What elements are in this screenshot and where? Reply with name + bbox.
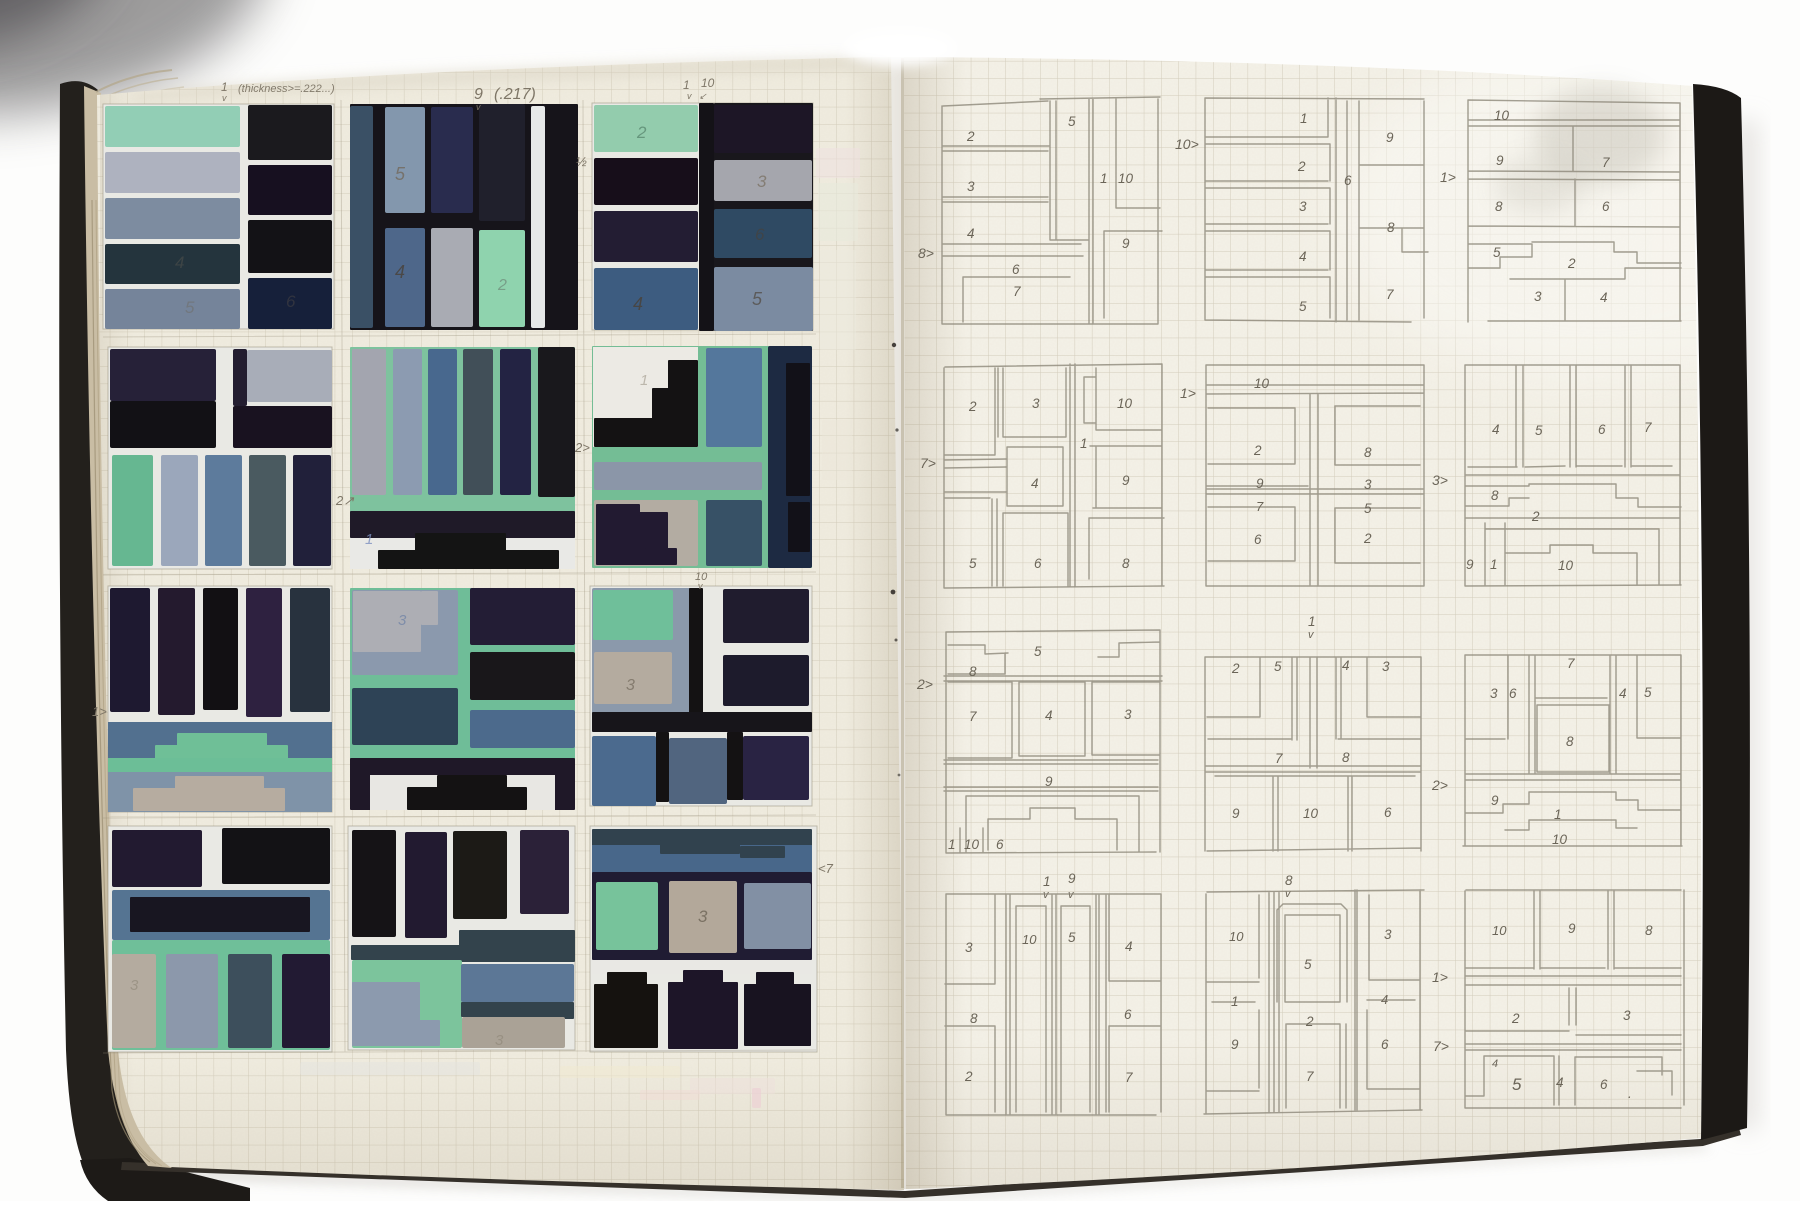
svg-text:8: 8: [1495, 199, 1503, 214]
svg-text:1: 1: [1490, 557, 1498, 572]
svg-text:3: 3: [626, 677, 635, 694]
svg-text:8>: 8>: [918, 245, 934, 261]
svg-text:2>: 2>: [574, 440, 590, 455]
svg-text:3: 3: [1534, 289, 1542, 304]
svg-text:10: 10: [1117, 396, 1133, 411]
svg-text:9: 9: [1122, 236, 1130, 251]
svg-text:7: 7: [1256, 499, 1264, 514]
svg-text:7: 7: [1386, 287, 1394, 302]
svg-text:9: 9: [1068, 871, 1076, 886]
svg-text:10: 10: [1552, 832, 1568, 847]
svg-text:1: 1: [948, 837, 956, 852]
svg-text:7: 7: [1125, 1070, 1133, 1085]
svg-text:3: 3: [398, 612, 407, 629]
svg-text:1: 1: [1300, 111, 1308, 126]
svg-text:v: v: [476, 102, 481, 112]
svg-text:2: 2: [497, 277, 507, 294]
svg-text:4: 4: [1299, 249, 1307, 264]
svg-text:2: 2: [1231, 661, 1240, 676]
svg-text:7: 7: [1306, 1069, 1314, 1084]
svg-text:6: 6: [1598, 422, 1606, 437]
svg-text:5: 5: [1493, 245, 1501, 260]
svg-text:8: 8: [1566, 734, 1574, 749]
svg-text:9: 9: [1045, 774, 1053, 789]
svg-text:10: 10: [701, 76, 715, 90]
svg-text:5: 5: [1364, 501, 1372, 516]
svg-text:6: 6: [1600, 1077, 1608, 1092]
svg-text:2: 2: [966, 129, 975, 144]
svg-text:(thickness>=.222...): (thickness>=.222...): [238, 83, 335, 95]
svg-text:10: 10: [1229, 929, 1244, 944]
svg-text:9: 9: [1231, 1037, 1239, 1052]
svg-text:↙: ↙: [699, 91, 707, 101]
svg-text:6: 6: [1254, 532, 1262, 547]
svg-text:4: 4: [1600, 290, 1608, 305]
svg-text:1: 1: [683, 78, 690, 92]
svg-text:3: 3: [967, 179, 975, 194]
svg-text:5: 5: [1299, 299, 1307, 314]
svg-text:9: 9: [1256, 476, 1264, 491]
svg-text:5: 5: [1068, 114, 1076, 129]
svg-text:1>: 1>: [1180, 385, 1196, 401]
svg-text:9: 9: [1496, 153, 1504, 168]
svg-text:5: 5: [1535, 423, 1543, 438]
svg-text:8: 8: [1645, 923, 1653, 938]
svg-text:1>: 1>: [1432, 969, 1448, 985]
svg-text:3: 3: [757, 172, 767, 191]
svg-text:4: 4: [1125, 939, 1133, 954]
svg-text:4: 4: [1031, 476, 1039, 491]
svg-text:6: 6: [1509, 686, 1517, 701]
svg-text:10: 10: [1558, 558, 1574, 573]
svg-text:1>: 1>: [1440, 169, 1456, 185]
svg-text:10: 10: [1492, 923, 1507, 938]
svg-text:3: 3: [698, 907, 708, 926]
svg-text:6: 6: [1602, 199, 1610, 214]
svg-text:3: 3: [1124, 707, 1132, 722]
svg-text:7: 7: [969, 709, 977, 724]
svg-text:3: 3: [1032, 396, 1040, 411]
svg-text:4: 4: [1342, 658, 1350, 673]
svg-text:4: 4: [1556, 1075, 1564, 1090]
svg-text:1: 1: [221, 80, 228, 94]
svg-text:9: 9: [474, 86, 483, 103]
svg-text:2↗: 2↗: [335, 493, 354, 508]
svg-text:5: 5: [1644, 685, 1652, 700]
svg-text:9: 9: [1386, 130, 1394, 145]
svg-text:6: 6: [1034, 556, 1042, 571]
svg-text:8: 8: [1342, 750, 1350, 765]
svg-text:5: 5: [752, 289, 763, 309]
svg-text:1: 1: [1100, 171, 1108, 186]
svg-text:5: 5: [1274, 659, 1282, 674]
svg-text:<7: <7: [818, 861, 834, 876]
svg-text:2: 2: [636, 123, 647, 142]
svg-text:9: 9: [1568, 921, 1576, 936]
svg-text:1: 1: [1043, 874, 1051, 889]
svg-text:3: 3: [1382, 659, 1390, 674]
svg-text:3>: 3>: [1432, 472, 1448, 488]
svg-text:10: 10: [1118, 171, 1134, 186]
svg-text:4: 4: [1045, 708, 1053, 723]
svg-text:2: 2: [1531, 509, 1540, 524]
svg-text:9: 9: [1122, 473, 1130, 488]
svg-text:8: 8: [1285, 873, 1293, 888]
svg-text:5: 5: [1068, 930, 1076, 945]
svg-text:2: 2: [1567, 256, 1576, 271]
svg-text:2: 2: [964, 1069, 973, 1084]
svg-text:3: 3: [1364, 477, 1372, 492]
svg-text:3: 3: [1623, 1008, 1631, 1023]
svg-text:2: 2: [1253, 443, 1262, 458]
svg-text:4: 4: [1492, 422, 1500, 437]
svg-text:2: 2: [968, 399, 977, 414]
svg-text:3: 3: [1490, 686, 1498, 701]
svg-text:6: 6: [1381, 1037, 1389, 1052]
svg-text:4: 4: [1619, 686, 1627, 701]
svg-text:2: 2: [1511, 1011, 1520, 1026]
svg-text:2>: 2>: [1431, 777, 1448, 793]
svg-text:1: 1: [1308, 614, 1316, 629]
svg-text:7: 7: [1644, 420, 1652, 435]
svg-text:4: 4: [967, 226, 975, 241]
svg-text:10: 10: [1022, 932, 1037, 947]
svg-text:6: 6: [1344, 173, 1352, 188]
svg-text:6: 6: [1012, 262, 1020, 277]
svg-text:10: 10: [1254, 376, 1270, 391]
svg-text:½: ½: [576, 154, 587, 169]
svg-text:9: 9: [1232, 806, 1240, 821]
svg-text:5: 5: [1304, 957, 1312, 972]
svg-text:8: 8: [1364, 445, 1372, 460]
svg-text:1: 1: [365, 531, 373, 548]
svg-text:5: 5: [395, 164, 406, 184]
svg-text:6: 6: [755, 225, 765, 244]
svg-text:9: 9: [1466, 557, 1474, 572]
svg-text:9: 9: [1491, 793, 1499, 808]
svg-text:7: 7: [1275, 751, 1283, 766]
svg-text:6: 6: [1124, 1007, 1132, 1022]
svg-text:4: 4: [1381, 992, 1388, 1007]
svg-text:8: 8: [970, 1011, 978, 1026]
svg-text:4: 4: [1492, 1058, 1498, 1070]
svg-text:3: 3: [1299, 199, 1307, 214]
svg-text:3: 3: [130, 977, 139, 994]
svg-text:(.217): (.217): [494, 86, 536, 103]
svg-text:1: 1: [1080, 436, 1088, 451]
svg-text:v: v: [222, 93, 227, 103]
svg-text:7: 7: [1602, 155, 1610, 170]
svg-text:4: 4: [633, 294, 643, 314]
svg-text:10: 10: [1303, 806, 1319, 821]
svg-text:4: 4: [395, 262, 405, 282]
svg-text:6: 6: [996, 837, 1004, 852]
svg-text:7>: 7>: [1433, 1038, 1449, 1054]
svg-text:2: 2: [1305, 1014, 1314, 1029]
svg-text:v: v: [698, 581, 703, 591]
svg-text:1: 1: [1231, 994, 1239, 1009]
svg-text:3: 3: [495, 1032, 504, 1049]
svg-text:2: 2: [1363, 531, 1372, 546]
svg-text:v: v: [687, 91, 692, 101]
svg-text:5: 5: [1512, 1075, 1522, 1094]
svg-text:3: 3: [1384, 927, 1392, 942]
svg-text:8: 8: [1491, 488, 1499, 503]
svg-text:7>: 7>: [920, 455, 936, 471]
svg-text:2: 2: [1297, 159, 1306, 174]
svg-text:10: 10: [1494, 108, 1510, 123]
svg-text:7: 7: [1013, 284, 1021, 299]
svg-text:8: 8: [1387, 220, 1395, 235]
svg-text:5: 5: [969, 556, 977, 571]
svg-text:5: 5: [185, 298, 195, 317]
svg-text:1: 1: [640, 372, 648, 389]
svg-text:10: 10: [964, 837, 980, 852]
svg-text:2>: 2>: [916, 676, 933, 692]
svg-text:1: 1: [1554, 807, 1562, 822]
svg-text:7: 7: [1567, 656, 1575, 671]
svg-text:1>: 1>: [92, 704, 107, 719]
svg-text:5: 5: [1034, 644, 1042, 659]
svg-text:6: 6: [1384, 805, 1392, 820]
svg-text:.: .: [1628, 1086, 1632, 1101]
svg-text:10>: 10>: [1175, 136, 1199, 152]
svg-text:8: 8: [1122, 556, 1130, 571]
svg-text:6: 6: [286, 292, 296, 311]
svg-text:4: 4: [175, 253, 184, 272]
svg-text:8: 8: [969, 664, 977, 679]
svg-text:3: 3: [965, 940, 973, 955]
